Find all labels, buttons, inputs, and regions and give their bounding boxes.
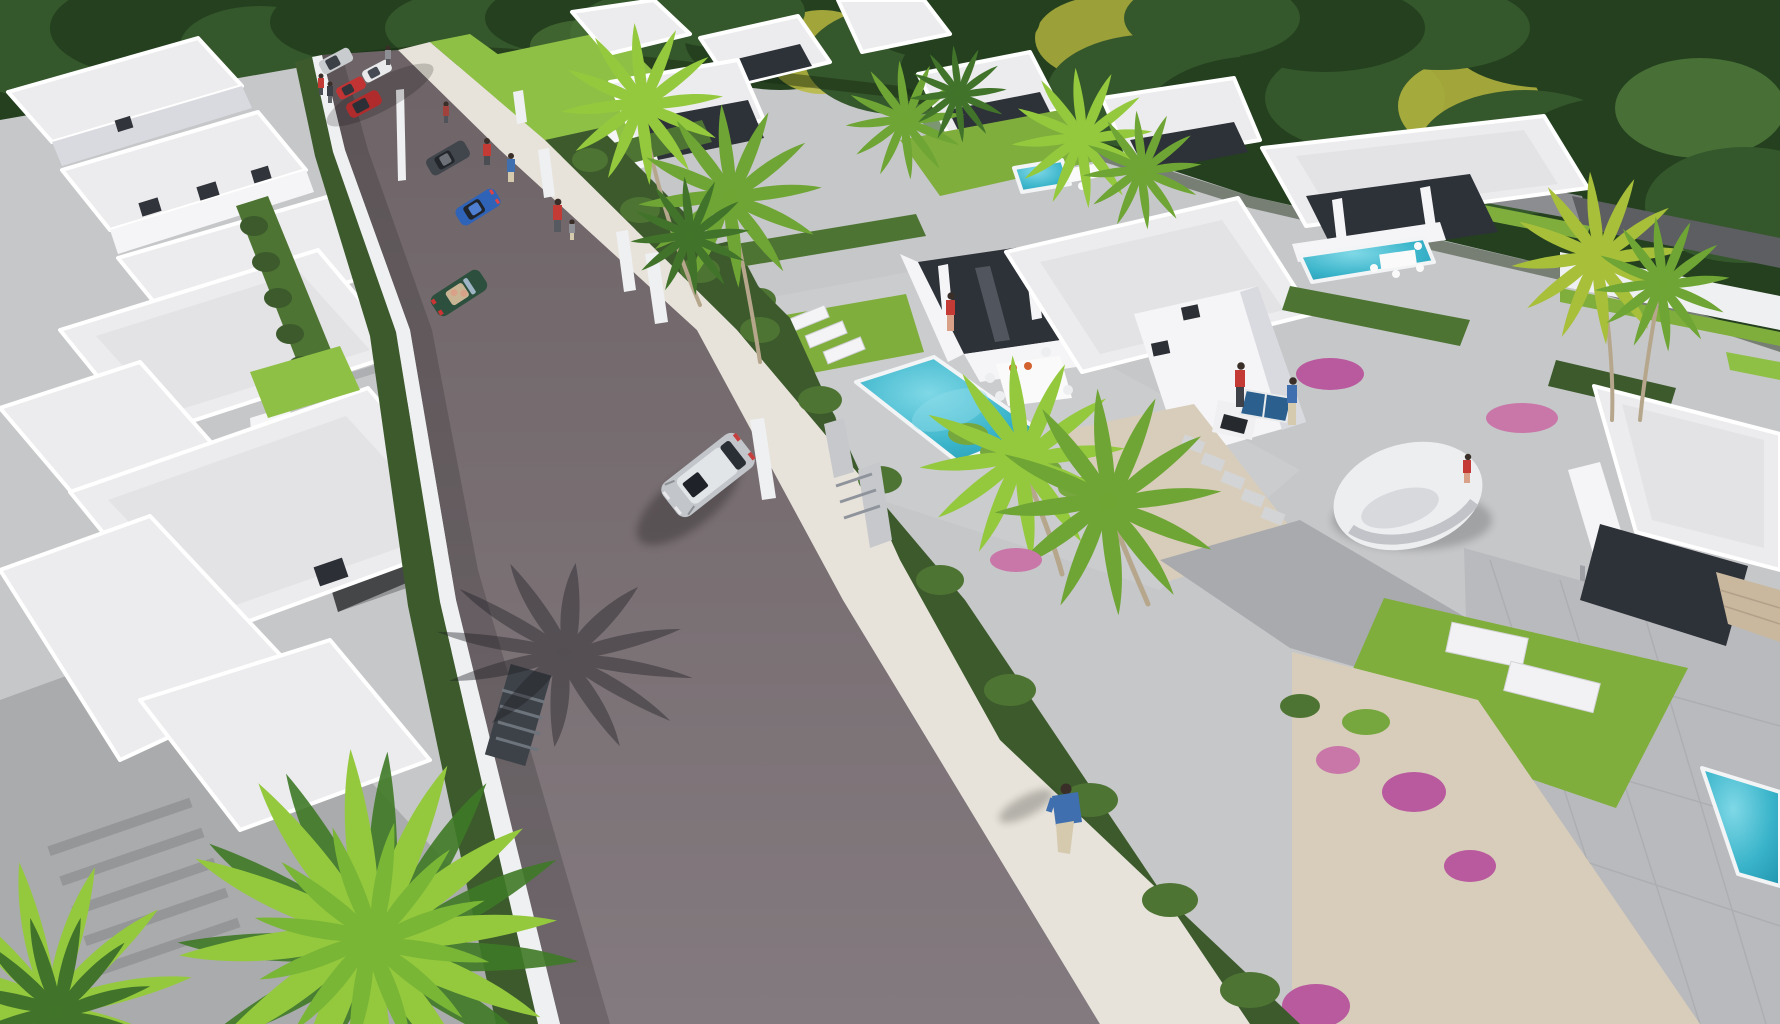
bougainvillea: [1486, 403, 1558, 433]
render-canvas: [0, 0, 1780, 1024]
bougainvillea: [1296, 358, 1364, 390]
villa-development-render: [0, 0, 1780, 1024]
pink-underplanting: [990, 548, 1042, 572]
person-red-walker: [483, 138, 491, 165]
